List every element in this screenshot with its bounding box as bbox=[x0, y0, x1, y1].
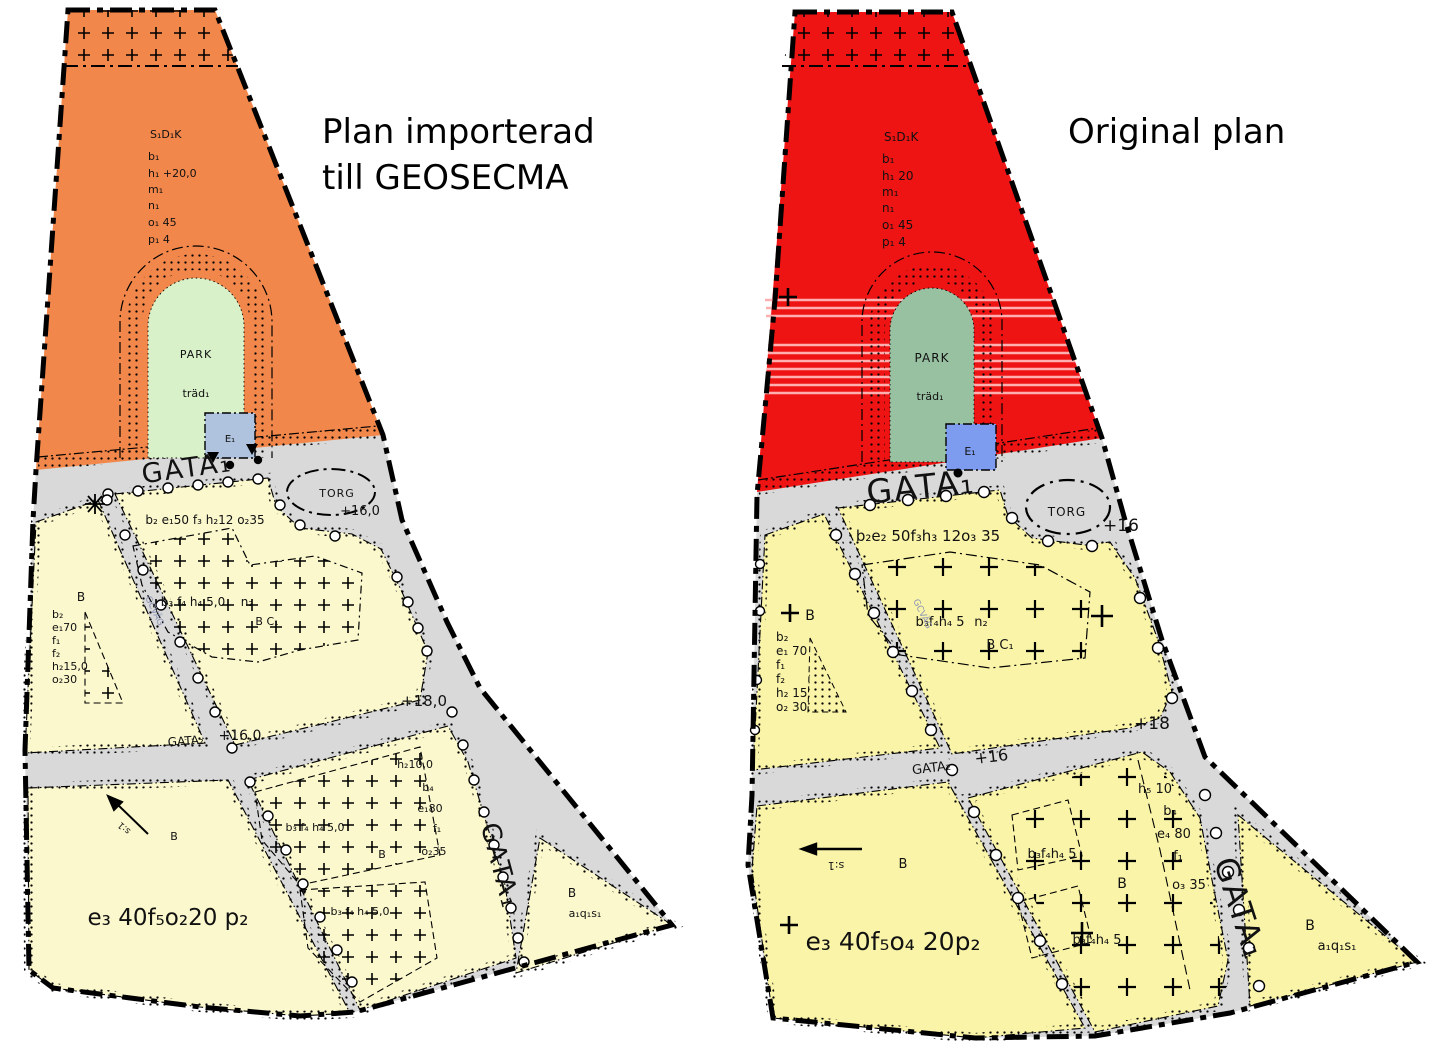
left-hcol-1: h₂10,0 bbox=[397, 758, 433, 771]
left-hcol-2: b₄ bbox=[422, 781, 434, 794]
left-b-corner: B bbox=[568, 886, 576, 900]
right-hcol-1: h₅ 10 bbox=[1138, 782, 1172, 797]
right-stack-1: b₂ bbox=[776, 630, 789, 644]
left-hcol-4: f₁ bbox=[433, 822, 441, 835]
right-formula: e₃ 40f₅o₄ 20p₂ bbox=[806, 927, 981, 956]
left-block1-row: b₂ e₁50 f₃ h₂12 o₂35 bbox=[145, 513, 264, 527]
right-hcol-4: f₁ bbox=[1173, 849, 1183, 864]
right-b-corner: B bbox=[1305, 918, 1315, 934]
right-trad-label: träd₁ bbox=[917, 390, 944, 403]
right-s-zone-h1: h₁ 20 bbox=[882, 169, 914, 183]
right-e1-label: E₁ bbox=[964, 445, 975, 458]
left-hcol-5: o₂35 bbox=[421, 845, 446, 858]
right-block1-row: b₂e₂ 50f₃h₃ 12o₃ 35 bbox=[856, 527, 1000, 545]
right-b-lower: B bbox=[899, 857, 908, 872]
left-torg-level: +16,0 bbox=[340, 504, 380, 519]
right-b-upper: B bbox=[805, 608, 815, 624]
right-junction-level: +18 bbox=[1134, 714, 1170, 734]
left-s-zone-code: S₁D₁K bbox=[150, 128, 182, 141]
right-bfh-upper: b₃f₄h₄ 5 bbox=[1027, 847, 1076, 862]
left-survey-star bbox=[85, 494, 105, 514]
right-stack-4: f₂ bbox=[776, 672, 785, 686]
left-bfh-lower: b₃ f₄ h₄ 5,0 bbox=[330, 905, 389, 918]
right-torg-level: +16 bbox=[1103, 516, 1139, 536]
right-stack-3: f₁ bbox=[776, 658, 785, 672]
left-b-lower: B bbox=[170, 830, 178, 843]
right-torg-label: TORG bbox=[1047, 505, 1086, 519]
right-bfh-lower: b₃f₄h₄ 5 bbox=[1072, 933, 1121, 948]
left-torg-label: TORG bbox=[318, 487, 355, 500]
left-bfh-mid: b₃ f₄ h₄ 5,0 bbox=[161, 595, 225, 609]
left-park-label: PARK bbox=[180, 348, 212, 361]
left-b-upper: B bbox=[77, 590, 85, 604]
right-stack-2: e₁ 70 bbox=[776, 644, 807, 658]
right-s-zone-m1: m₁ bbox=[882, 185, 899, 199]
right-n2-label: n₂ bbox=[974, 615, 987, 630]
left-stack-1: b₂ bbox=[52, 608, 63, 621]
right-hcol-3: e₄ 80 bbox=[1157, 827, 1191, 842]
left-n2-label: n₂ bbox=[241, 595, 254, 609]
left-s-zone-n1: n₁ bbox=[148, 199, 159, 212]
left-top-cross-band bbox=[64, 10, 238, 68]
right-zone-y5 bbox=[1238, 815, 1417, 1006]
left-hcol-3: e₁80 bbox=[417, 802, 442, 815]
plan-comparison-page: S₁D₁K b₁ h₁ +20,0 m₁ n₁ o₁ 45 p₁ 4 PARK … bbox=[0, 0, 1444, 1059]
left-s-zone-o1: o₁ 45 bbox=[148, 216, 177, 229]
right-s-zone-o1: o₁ 45 bbox=[882, 218, 913, 232]
left-bfh-upper: b₃ f₄ h₄ 5,0 bbox=[285, 821, 344, 834]
right-s-zone-code: S₁D₁K bbox=[884, 130, 919, 144]
right-title: Original plan bbox=[1068, 112, 1285, 152]
left-stack-3: f₁ bbox=[52, 634, 60, 647]
right-b-mid: B bbox=[1117, 876, 1127, 892]
left-junction-level: +18,0 bbox=[401, 692, 447, 710]
left-e1-label: E₁ bbox=[225, 434, 235, 445]
left-trad-label: träd₁ bbox=[183, 387, 210, 400]
right-stack-5: h₂ 15 bbox=[776, 686, 808, 700]
left-stack-6: o₂30 bbox=[52, 673, 77, 686]
right-map: S₁D₁K b₁ h₁ 20 m₁ n₁ o₁ 45 p₁ 4 PARK trä… bbox=[748, 12, 1417, 1038]
left-s-zone-b1: b₁ bbox=[148, 150, 159, 163]
plan-comparison-graphic: S₁D₁K b₁ h₁ +20,0 m₁ n₁ o₁ 45 p₁ 4 PARK … bbox=[0, 0, 1444, 1059]
left-b-mid: B bbox=[378, 848, 386, 861]
right-s-zone-n1: n₁ bbox=[882, 201, 895, 215]
left-stack-2: e₁70 bbox=[52, 621, 77, 634]
right-top-cross-band bbox=[782, 12, 972, 68]
right-hcol-2: b₄ bbox=[1163, 804, 1176, 819]
left-title-line2: till GEOSECMA bbox=[322, 158, 568, 198]
left-stack-5: h₂15,0 bbox=[52, 660, 88, 673]
left-aqs-label: a₁q₁s₁ bbox=[569, 907, 602, 920]
left-stack-4: f₂ bbox=[52, 647, 60, 660]
left-s-zone-m1: m₁ bbox=[148, 183, 163, 196]
right-s-marker: s:1 bbox=[828, 859, 844, 872]
right-stack-6: o₂ 30 bbox=[776, 700, 807, 714]
left-title-line1: Plan importerad bbox=[322, 112, 595, 152]
left-gata2-label: GATA₂ bbox=[167, 733, 204, 749]
left-formula: e₃ 40f₅o₂20 p₂ bbox=[88, 905, 249, 931]
left-s-zone-h1: h₁ +20,0 bbox=[148, 167, 197, 180]
left-s-zone-p1: p₁ 4 bbox=[148, 233, 170, 246]
right-s-zone-p1: p₁ 4 bbox=[882, 235, 906, 249]
right-aqs-label: a₁q₁s₁ bbox=[1318, 939, 1357, 954]
right-s-zone-b1: b₁ bbox=[882, 152, 895, 166]
right-park-label: PARK bbox=[915, 351, 950, 365]
left-bc1-label: B C₁ bbox=[255, 615, 278, 628]
left-gata2-level: +16,0 bbox=[219, 728, 262, 744]
right-hcol-5: o₃ 35 bbox=[1172, 878, 1206, 893]
right-bc1-label: B C₁ bbox=[986, 638, 1013, 653]
